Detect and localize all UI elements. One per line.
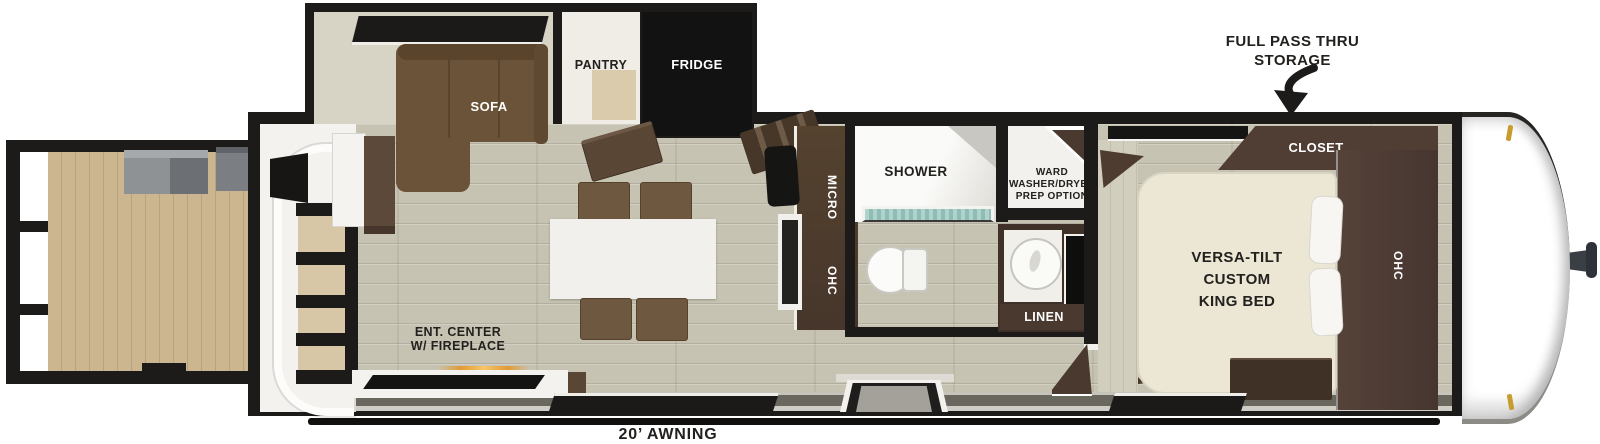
- sofa-armrest: [534, 44, 548, 144]
- label-ent-center: ENT. CENTER W/ FIREPLACE: [368, 325, 548, 354]
- sofa-seam: [498, 50, 500, 138]
- deck-rail-left: [6, 140, 20, 384]
- deck-frame-bottom: [8, 371, 252, 384]
- stove: [764, 145, 800, 207]
- label-bedroom-ohc: OHC: [1378, 233, 1404, 299]
- label-fridge: FRIDGE: [640, 58, 754, 73]
- bottom-window: [549, 393, 779, 411]
- label-micro: MICRO: [812, 150, 838, 245]
- awning-bar: [308, 418, 1440, 425]
- storage-arrow-icon: [1240, 58, 1360, 120]
- rear-window: [270, 153, 308, 203]
- kitchen-cabinet-interior: [782, 220, 798, 304]
- dining-chair: [578, 182, 630, 223]
- rear-step-rail: [345, 203, 358, 384]
- label-king-bed: VERSA-TILT CUSTOM KING BED: [1137, 247, 1337, 312]
- dining-table: [550, 219, 716, 299]
- entry-step-tread: [856, 386, 932, 412]
- sofa-chaise: [396, 44, 470, 192]
- sofa-seam: [448, 50, 450, 138]
- dining-chair: [580, 298, 632, 340]
- label-awning: 20’ AWNING: [558, 426, 778, 444]
- front-cap: [1462, 112, 1570, 424]
- label-pantry: PANTRY: [560, 58, 642, 72]
- bottom-window: [1109, 393, 1247, 411]
- deck-bench-top: [124, 150, 208, 158]
- label-linen: LINEN: [1000, 310, 1088, 324]
- rear-cabinet-white: [332, 133, 366, 227]
- fridge: [640, 10, 754, 138]
- label-shower: SHOWER: [858, 164, 974, 180]
- deck-box: [216, 147, 252, 191]
- slide-window: [351, 16, 548, 45]
- floorplan: SOFA PANTRY FRIDGE MICRO OHC ENT. CENTER…: [0, 0, 1600, 444]
- ward-wall: [1008, 208, 1096, 220]
- hitch-coupler: [1586, 242, 1597, 278]
- deck-notch: [142, 363, 186, 372]
- dining-chair: [636, 298, 688, 341]
- pantry-shelf: [592, 70, 636, 120]
- sofa-back: [398, 44, 546, 60]
- dining-chair: [640, 182, 692, 223]
- tv-screen: [363, 375, 545, 389]
- label-sofa: SOFA: [430, 100, 548, 115]
- label-kitchen-ohc: OHC: [812, 252, 838, 310]
- bedroom-wall: [1084, 116, 1098, 344]
- bedroom-window: [1108, 126, 1248, 141]
- rear-cabinet-brown: [364, 136, 395, 234]
- toilet-tank: [902, 248, 928, 292]
- shower-glass-door: [862, 206, 994, 222]
